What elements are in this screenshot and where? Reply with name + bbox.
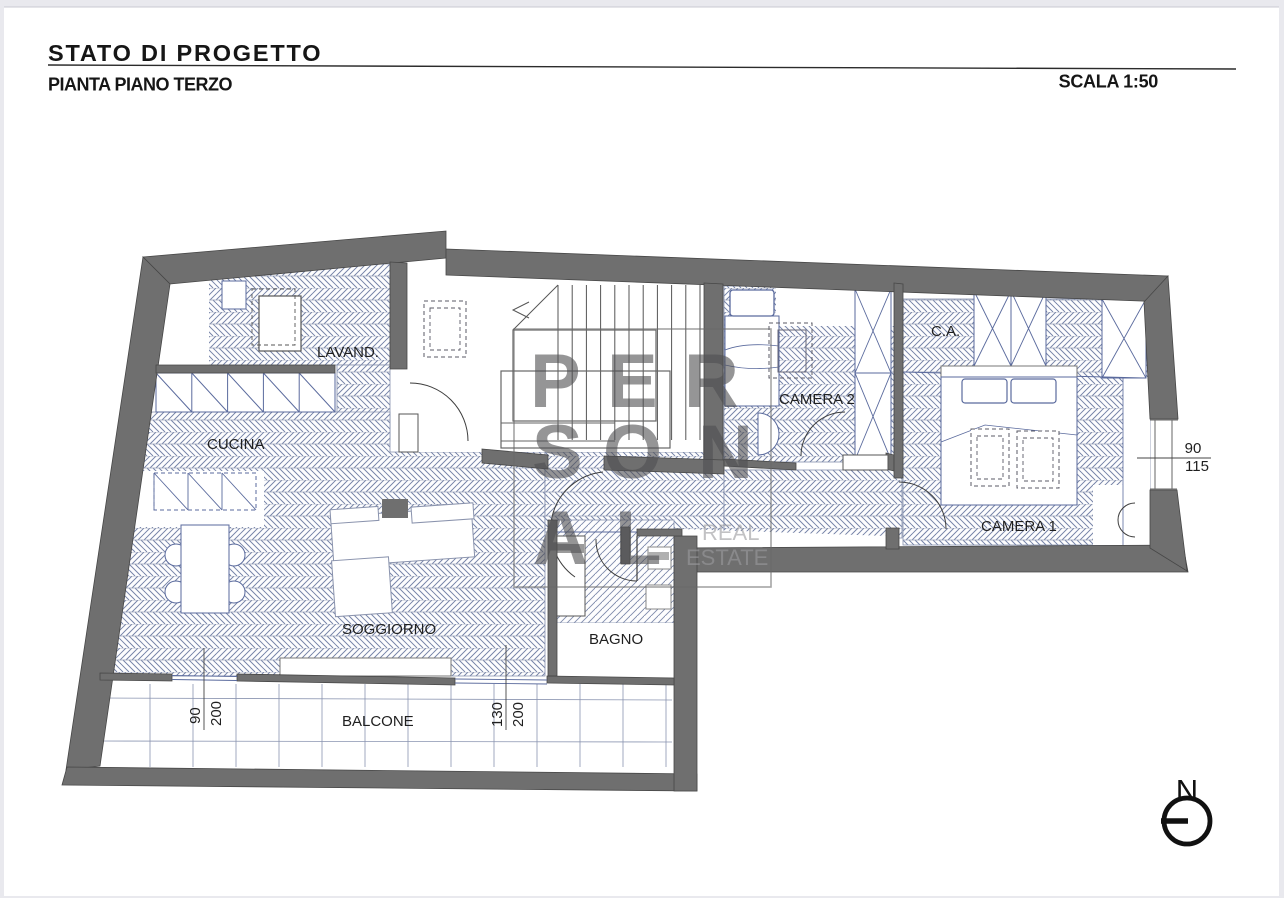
svg-text:BAGNO: BAGNO: [589, 631, 643, 648]
svg-text:115: 115: [1185, 458, 1209, 475]
svg-text:BALCONE: BALCONE: [342, 713, 414, 730]
svg-text:90: 90: [1185, 440, 1202, 457]
svg-text:N: N: [698, 410, 753, 495]
svg-text:LAVAND.: LAVAND.: [317, 344, 379, 361]
svg-text:90: 90: [187, 707, 204, 724]
svg-text:PIANTA PIANO TERZO: PIANTA PIANO TERZO: [48, 75, 232, 95]
svg-text:200: 200: [510, 702, 527, 727]
svg-text:200: 200: [208, 701, 225, 726]
svg-text:N: N: [1176, 773, 1198, 808]
svg-text:C.A.: C.A.: [931, 323, 960, 340]
svg-text:130: 130: [489, 702, 506, 727]
svg-text:CAMERA 2: CAMERA 2: [779, 391, 855, 408]
svg-text:STATO DI PROGETTO: STATO DI PROGETTO: [48, 40, 322, 66]
svg-text:A: A: [533, 496, 588, 581]
svg-text:CUCINA: CUCINA: [207, 436, 265, 453]
svg-text:REAL: REAL: [702, 520, 759, 545]
svg-text:S: S: [532, 410, 583, 495]
svg-text:CAMERA 1: CAMERA 1: [981, 518, 1057, 535]
svg-text:L: L: [615, 496, 661, 581]
svg-text:O: O: [603, 410, 662, 495]
svg-text:ESTATE: ESTATE: [686, 545, 768, 570]
svg-text:SOGGIORNO: SOGGIORNO: [342, 621, 436, 638]
svg-text:SCALA 1:50: SCALA 1:50: [1059, 72, 1159, 92]
